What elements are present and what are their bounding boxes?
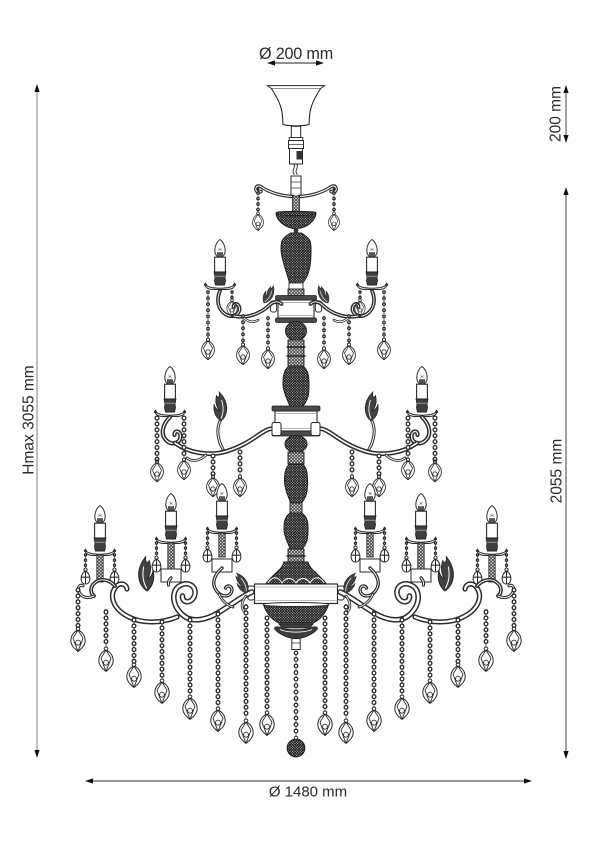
svg-text:200 mm: 200 mm <box>548 86 565 142</box>
svg-text:Hmax 3055 mm: Hmax 3055 mm <box>21 365 38 474</box>
svg-text:Ø 200 mm: Ø 200 mm <box>259 45 333 63</box>
svg-text:2055 mm: 2055 mm <box>549 439 566 504</box>
svg-text:Ø 1480 mm: Ø 1480 mm <box>269 784 347 801</box>
